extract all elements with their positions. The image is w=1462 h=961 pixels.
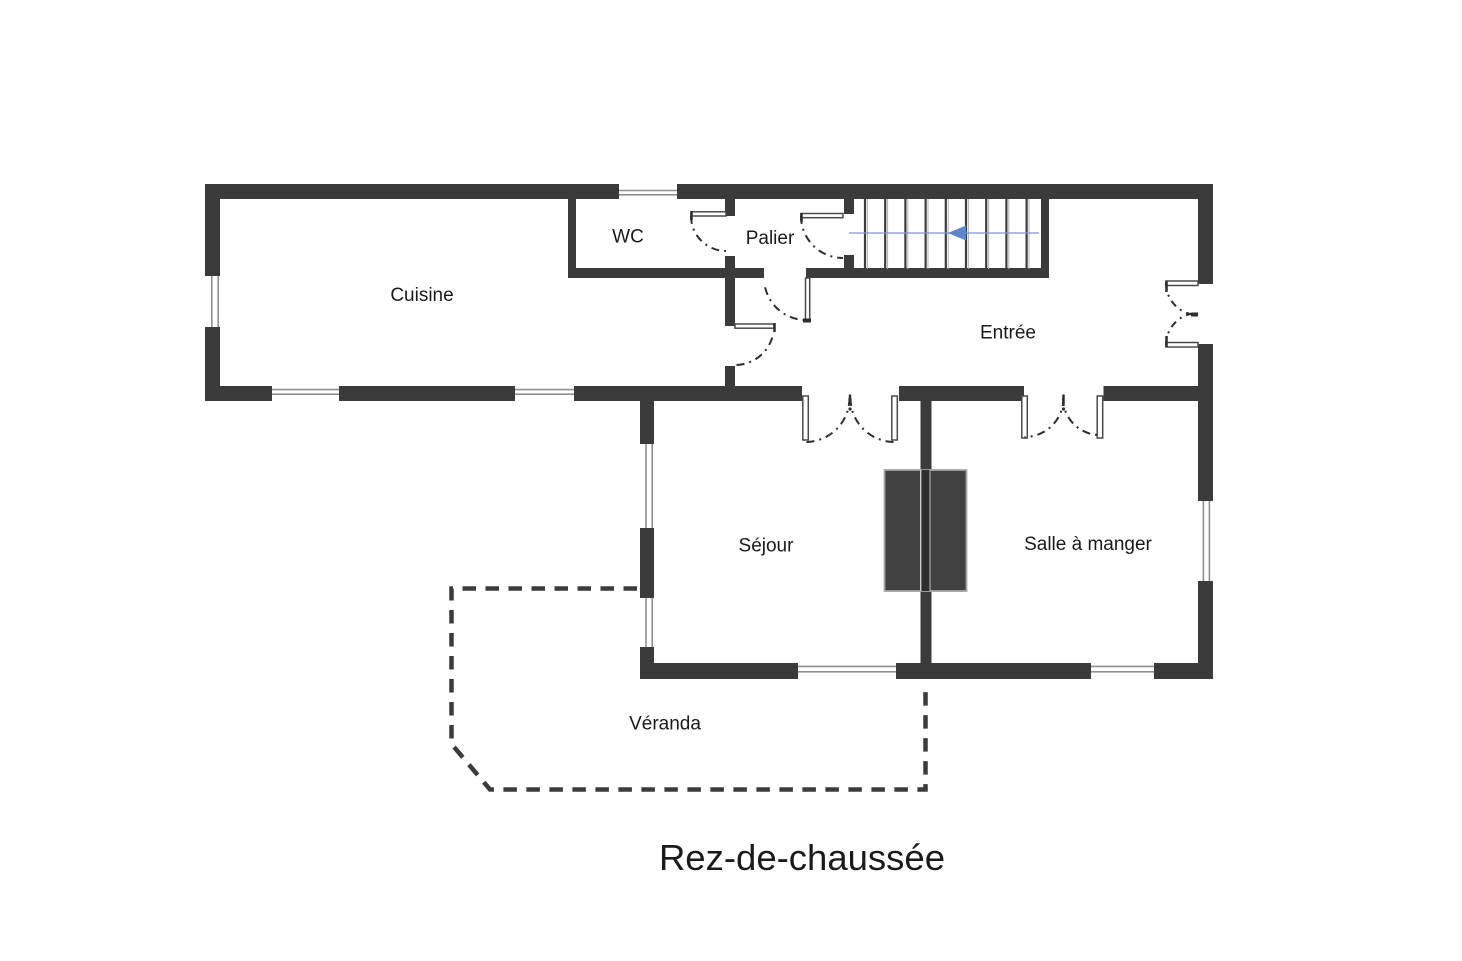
svg-text:Salle à manger: Salle à manger xyxy=(1024,534,1152,555)
svg-text:WC: WC xyxy=(612,227,644,248)
svg-text:Séjour: Séjour xyxy=(739,536,795,557)
svg-text:Véranda: Véranda xyxy=(629,714,701,735)
svg-text:Palier: Palier xyxy=(746,228,795,249)
svg-text:Rez-de-chaussée: Rez-de-chaussée xyxy=(659,837,945,878)
svg-text:Entrée: Entrée xyxy=(980,323,1036,344)
svg-text:Cuisine: Cuisine xyxy=(390,285,453,306)
